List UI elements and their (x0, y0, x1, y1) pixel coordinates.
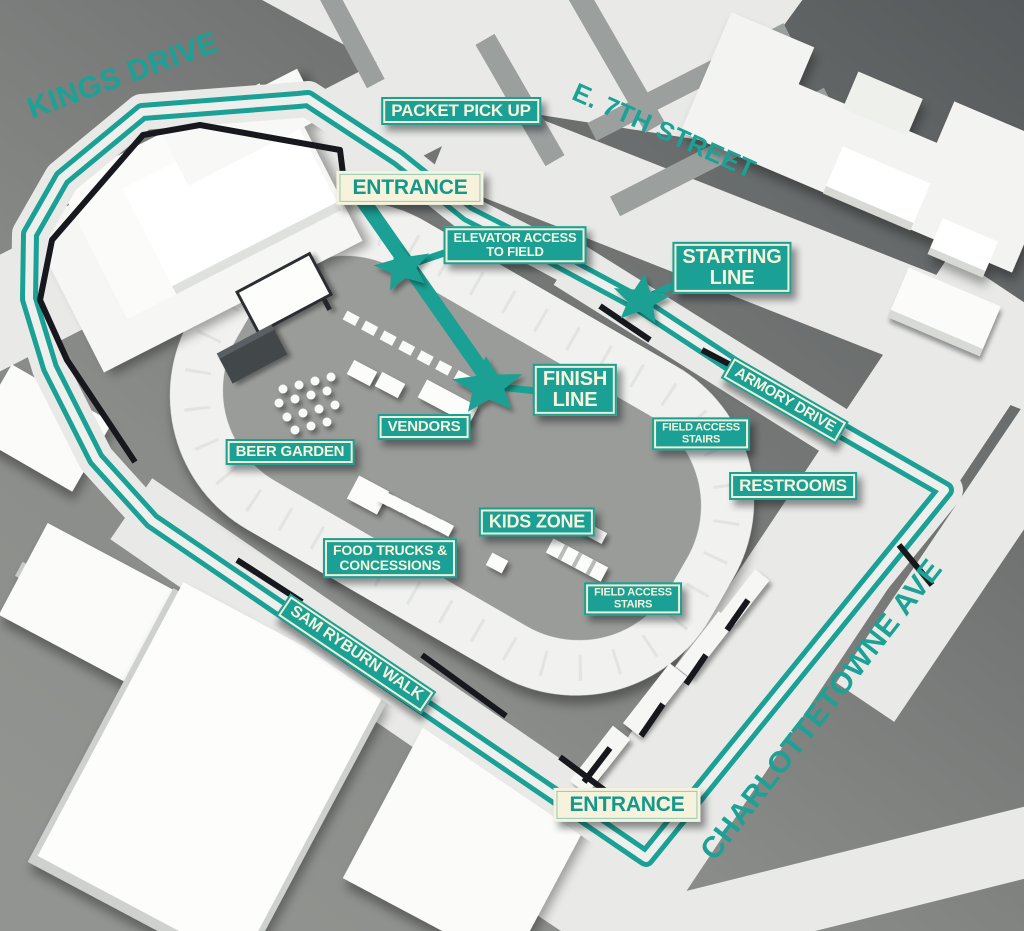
event-map: KINGS DRIVE E. 7TH STREET CHARLOTTETOWNE… (0, 0, 1024, 931)
map-canvas (0, 0, 1024, 931)
badge-entrance-top: ENTRANCE (336, 171, 483, 205)
badge-field-access-stairs-north: FIELD ACCESS STAIRS (652, 417, 750, 450)
badge-restrooms: RESTROOMS (729, 472, 857, 500)
badge-food-trucks: FOOD TRUCKS & CONCESSIONS (323, 538, 457, 578)
badge-beer-garden: BEER GARDEN (226, 439, 355, 465)
badge-finish-line: FINISH LINE (533, 364, 617, 416)
badge-starting-line: STARTING LINE (672, 242, 791, 294)
badge-vendors: VENDORS (378, 414, 471, 440)
badge-kids-zone: KIDS ZONE (479, 507, 595, 536)
badge-entrance-bottom: ENTRANCE (553, 788, 700, 822)
badge-elevator-access: ELEVATOR ACCESS TO FIELD (444, 226, 587, 264)
badge-packet-pickup: PACKET PICK UP (381, 97, 541, 125)
badge-field-access-stairs-south: FIELD ACCESS STAIRS (584, 582, 682, 615)
